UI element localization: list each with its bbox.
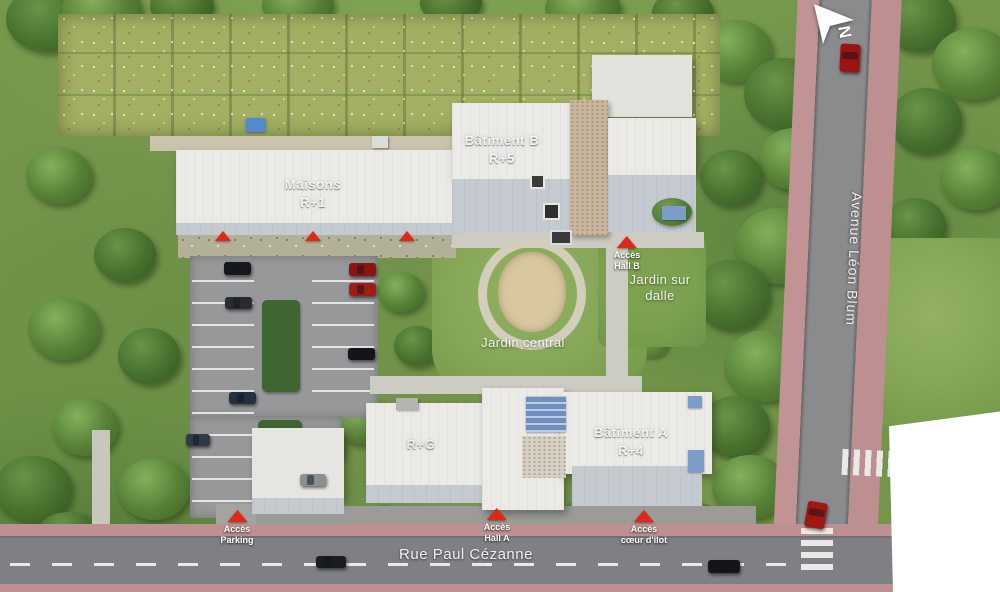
building-a-solar-panel-1 [688,450,704,472]
garden-shed [372,136,388,148]
building-b-roof-hatch-2 [543,203,560,220]
acces-coeur-line2: cœur d'îlot [621,535,667,546]
batiment-b-floors: R+5 [489,151,515,166]
car [348,348,375,360]
building-b-solar-panel [662,206,686,220]
marker-acces-parking: Accès Parking [220,510,253,547]
marker-acces-coeur-ilot: Accès cœur d'îlot [621,510,667,547]
car-avenue-north [839,43,860,72]
building-annex-roof-gray [252,498,344,514]
crosswalk-rue [801,528,833,574]
label-batiment-b: Bâtiment B R+5 [465,132,540,167]
building-b-roof-hatch-1 [530,174,545,189]
batiment-a-floors: R+4 [618,443,644,458]
parking-island-hedge [262,300,300,392]
access-triangle-icon [634,510,654,522]
building-b-gravel-terrace [570,100,608,235]
acces-hall-a-line2: Hall A [484,533,509,544]
tree [890,88,962,154]
building-a-roof-deck [522,436,566,478]
tree [940,148,1000,210]
batiment-a-name: Bâtiment A [594,425,668,440]
car-rue-west [316,556,346,568]
parking-stall-lines-east [312,260,374,400]
garden-path [150,136,480,151]
tree [118,458,190,520]
tree [94,228,156,282]
tree [700,150,762,206]
rue-paul-cezanne-text: Rue Paul Cézanne [399,546,533,563]
car [229,392,256,404]
building-a-roof-gray [572,466,702,506]
tree [378,272,424,312]
label-jardin-central: Jardin central [481,335,565,351]
tree [118,328,180,384]
jardin-dalle-line1: Jardin sur [629,272,690,287]
rue-sidewalk-south [0,584,1000,592]
maisons-entrance-marker-1 [215,231,231,241]
garden-shed-tarp [246,118,266,132]
access-triangle-icon [227,510,247,522]
wing-floors: R+G [407,437,436,452]
acces-hall-b-line1: Accès [614,250,641,261]
access-triangle-icon [487,508,507,520]
site-plan: Maisons R+1 Bâtiment B R+5 Bâtiment A R+… [0,0,1000,592]
acces-hall-a-line1: Accès [484,522,511,533]
acces-parking-line2: Parking [220,535,253,546]
car [225,297,252,309]
label-rue-paul-cezanne: Rue Paul Cézanne [399,546,533,563]
maisons-entrance-marker-3 [399,231,415,241]
maisons-name: Maisons [285,177,341,192]
playground-sand [498,252,566,332]
jardin-central-text: Jardin central [481,335,565,350]
acces-hall-b-line2: Hall B [614,261,640,272]
tree [28,298,100,360]
building-a-solar-panel-2 [688,396,702,408]
tree [932,28,1000,100]
access-triangle-icon [617,236,637,248]
label-wing-floors: R+G [407,436,436,454]
building-a-pergola [526,396,566,432]
car [349,283,376,296]
acces-coeur-line1: Accès [631,524,658,535]
building-annex-roof [252,428,344,500]
car [224,262,251,275]
maisons-entrance-marker-2 [305,231,321,241]
car [349,263,376,276]
maisons-floors: R+1 [300,195,326,210]
batiment-b-name: Bâtiment B [465,133,540,148]
label-batiment-a: Bâtiment A R+4 [594,424,668,459]
crosswalk-avenue [841,449,894,477]
acces-parking-line1: Accès [224,524,251,535]
west-footpath [92,430,110,532]
rue-center-line [10,563,790,566]
label-jardin-sur-dalle: Jardin sur dalle [629,272,690,305]
car [186,434,210,446]
building-wing-roof-gray [366,485,482,503]
car [300,474,326,486]
building-b-roof-hatch-3 [550,230,572,245]
east-green-band [878,238,1000,426]
building-b-roof-east [608,118,696,175]
marker-acces-hall-b: Accès Hall B [614,236,641,273]
building-wing-rooftop-unit [396,398,418,410]
marker-acces-hall-a: Accès Hall A [484,508,511,545]
car-rue-east [708,560,740,573]
label-maisons: Maisons R+1 [285,176,341,211]
tree [26,148,92,204]
jardin-dalle-line2: dalle [645,288,674,303]
